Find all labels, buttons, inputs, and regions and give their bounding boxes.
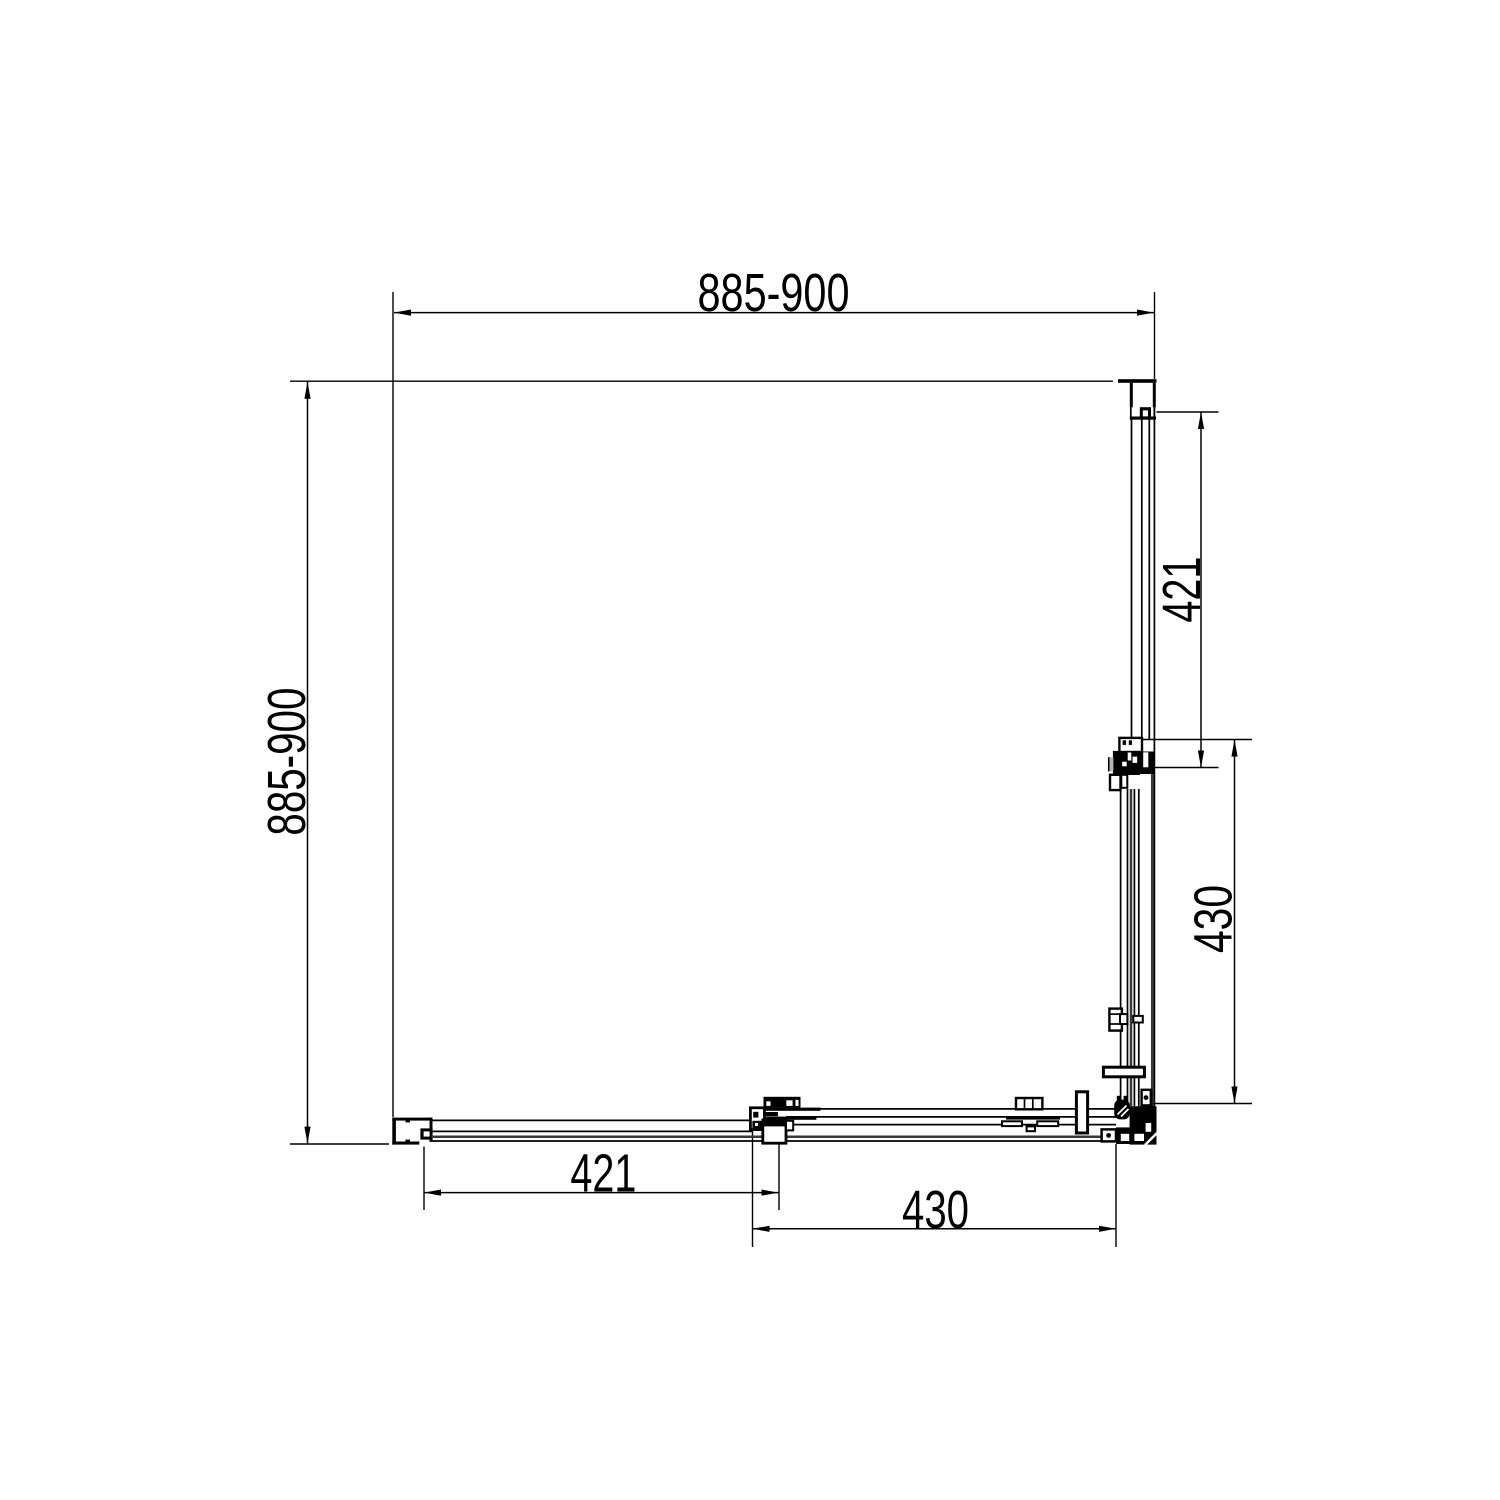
svg-text:885-900: 885-900 (698, 263, 850, 323)
svg-text:421: 421 (570, 1143, 636, 1203)
svg-text:430: 430 (1184, 885, 1244, 953)
svg-text:430: 430 (902, 1180, 969, 1240)
svg-text:421: 421 (1152, 557, 1212, 623)
svg-text:885-900: 885-900 (257, 688, 317, 836)
